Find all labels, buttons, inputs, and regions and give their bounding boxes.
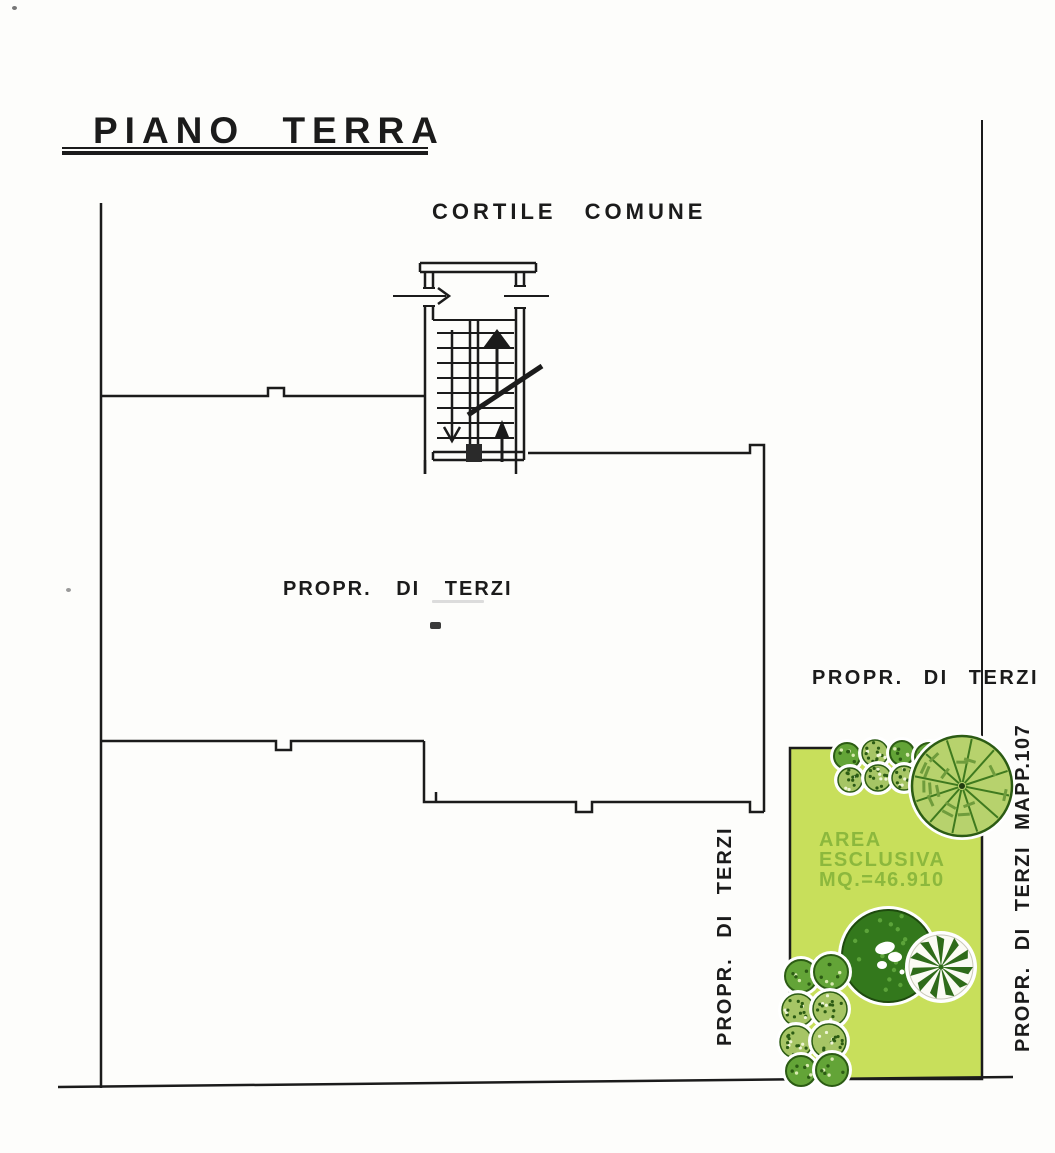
label-area-esclusiva: AREA ESCLUSIVA MQ.=46.910: [819, 830, 945, 890]
floor-plan-page: PIANO TERRA CORTILE COMUNE PROPR. DI TER…: [0, 0, 1055, 1153]
stair-up-arrow-small: [495, 420, 509, 462]
tree-tree-starburst: [905, 931, 977, 1003]
boundary-bottom: [58, 1077, 1013, 1087]
area-line-3: MQ.=46.910: [819, 870, 945, 890]
scan-speck: [12, 6, 17, 10]
wall-upper: [101, 388, 424, 396]
scan-mark: [430, 622, 441, 629]
label-propr-di-terzi-right: PROPR. DI TERZI: [812, 667, 1039, 690]
title-underline-thin: [62, 147, 428, 149]
staircase: [393, 263, 549, 474]
area-line-2: ESCLUSIVA: [819, 850, 945, 870]
scan-smudge: [432, 600, 484, 603]
label-cortile-comune: CORTILE COMUNE: [432, 199, 706, 225]
label-propr-di-terzi-vertical: PROPR. DI TERZI: [714, 826, 737, 1046]
scan-speck: [66, 588, 71, 592]
label-propr-di-terzi-main: PROPR. DI TERZI: [283, 578, 513, 601]
tree-bush-solid: [810, 951, 852, 993]
stair-ink-blot: [466, 444, 482, 462]
page-title: PIANO TERRA: [93, 110, 445, 152]
stair-down-arrow: [444, 330, 460, 441]
title-underline-thick: [62, 151, 428, 155]
plan-drawing: [0, 0, 1055, 1153]
label-propr-di-terzi-mapp107: PROPR. DI TERZI MAPP.107: [1012, 724, 1035, 1052]
wall-bottom: [424, 741, 764, 812]
wall-right: [528, 445, 764, 812]
entry-arrow: [393, 288, 449, 304]
tree-bush-solid: [812, 1050, 852, 1090]
wall-lower-left: [101, 741, 424, 750]
tree-tree-hatched: [908, 732, 1016, 840]
area-line-1: AREA: [819, 830, 945, 850]
